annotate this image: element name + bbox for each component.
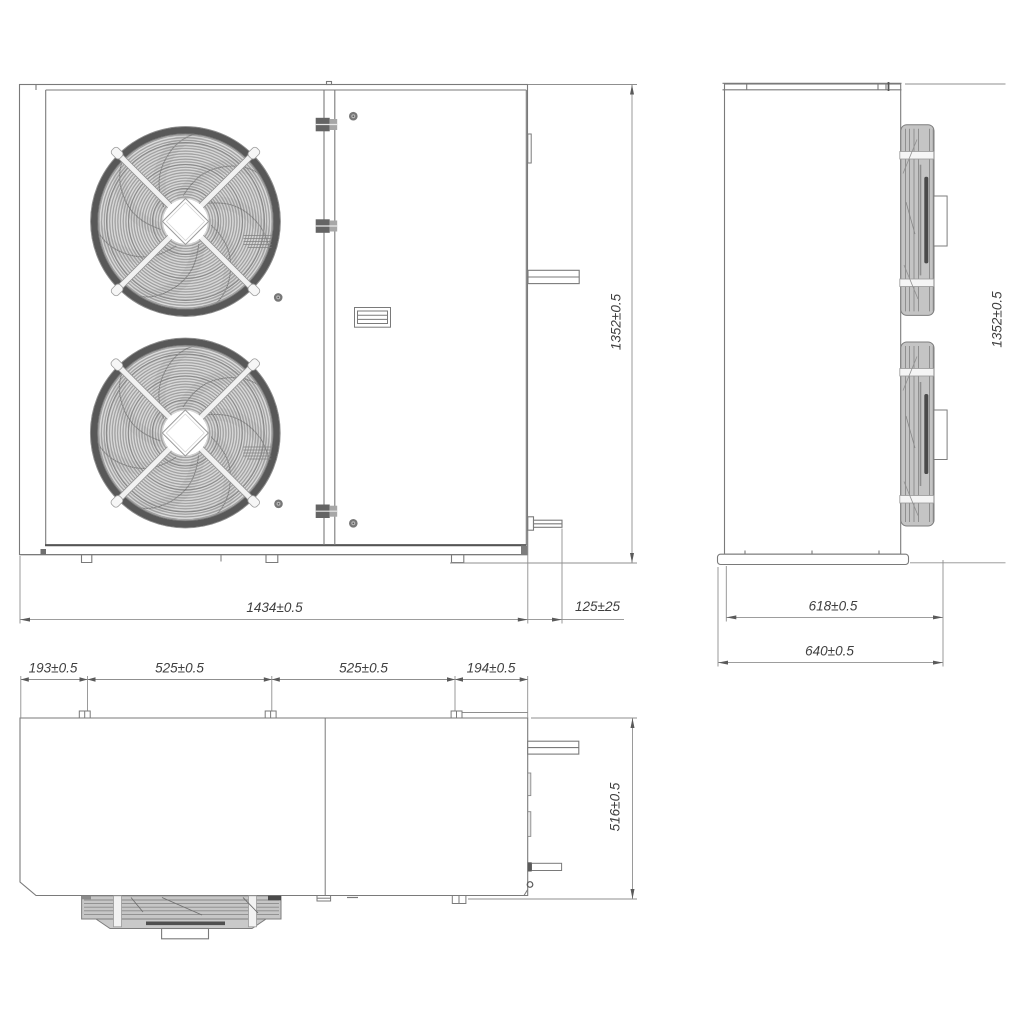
svg-text:640±0.5: 640±0.5	[805, 644, 854, 659]
svg-text:1352±0.5: 1352±0.5	[609, 293, 624, 350]
svg-text:525±0.5: 525±0.5	[339, 661, 388, 676]
svg-text:525±0.5: 525±0.5	[155, 661, 204, 676]
svg-text:516±0.5: 516±0.5	[608, 782, 623, 831]
svg-text:1434±0.5: 1434±0.5	[246, 600, 303, 615]
svg-text:193±0.5: 193±0.5	[29, 661, 78, 676]
svg-text:1352±0.5: 1352±0.5	[990, 291, 1005, 348]
svg-text:194±0.5: 194±0.5	[467, 661, 516, 676]
svg-text:125±25: 125±25	[575, 599, 620, 614]
svg-text:618±0.5: 618±0.5	[809, 599, 858, 614]
